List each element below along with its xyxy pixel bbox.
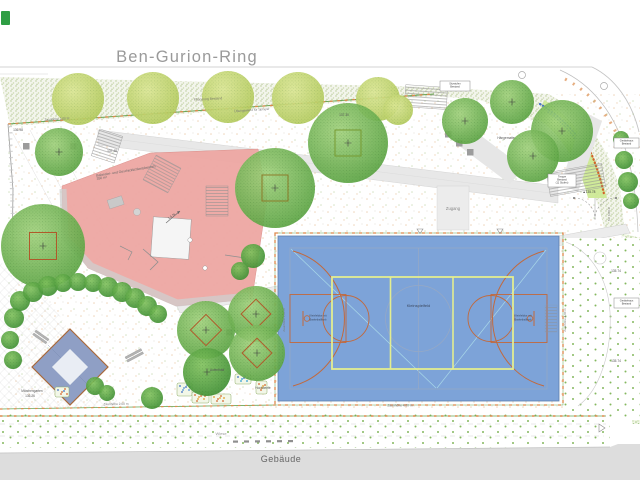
bed-flower-dot (246, 380, 248, 382)
annotation-box-text: Bestand (450, 85, 460, 89)
plan-label: Hochbeete (255, 386, 271, 390)
play-equipment (134, 209, 141, 216)
bed-flower-dot (57, 389, 59, 391)
plan-label: Tor 4,00 m (607, 206, 611, 221)
bed-flower-dot (194, 394, 196, 396)
tree-texture (618, 172, 638, 192)
legend-chip (1, 11, 10, 25)
bed-flower-dot (198, 396, 200, 398)
bed-flower-dot (196, 400, 198, 402)
gate-post (615, 197, 617, 199)
plaza-fixture (467, 149, 474, 156)
court-steps (545, 305, 557, 332)
annotation-box-text: Bestand (622, 302, 632, 306)
bed-flower-dot (258, 383, 260, 385)
bed-flower-dot (219, 397, 221, 399)
tree-texture (272, 72, 324, 124)
plan-label: 135.74 (611, 269, 621, 273)
plan-label: Hängematte (497, 136, 515, 140)
bed-flower-dot (197, 398, 199, 400)
meadow-dots (0, 412, 610, 448)
tree-texture (141, 387, 163, 409)
plan-label: 137.30 (339, 113, 349, 117)
bed-flower-dot (237, 376, 239, 378)
plan-label: 136.98 (13, 128, 23, 132)
tree-texture (4, 308, 24, 328)
fence-label-right: Zaunhöhe 4,00 m (563, 308, 567, 332)
tree-texture (4, 351, 22, 369)
plan-label: Zugang (446, 206, 461, 211)
bed-flower-dot (63, 390, 65, 392)
tree-texture (127, 72, 179, 124)
plan-label: ▲135.78 (583, 190, 596, 194)
post (188, 238, 192, 242)
bed-flower-dot (183, 387, 185, 389)
plan-label: 135.74 (611, 359, 621, 363)
bed-flower-dot (188, 389, 190, 391)
bed-flower-dot (64, 388, 66, 390)
right-meadow (563, 238, 640, 420)
post (203, 266, 207, 270)
tree-texture (231, 262, 249, 280)
bed-flower-dot (213, 396, 215, 398)
tree-texture (149, 305, 167, 323)
bottom-meadow (0, 412, 610, 448)
goal-label-right: Basketballkorb (514, 318, 532, 322)
tree-texture (615, 151, 633, 169)
equipment-pad (151, 217, 192, 260)
bed-flower-dot (61, 391, 63, 393)
bed-flower-dot (223, 397, 225, 399)
bed-flower-dot (66, 393, 68, 395)
street-lamp-icon (519, 72, 526, 79)
bed-flower-dot (241, 378, 243, 380)
tree-texture (99, 385, 115, 401)
plan-label: Zaunhöhe 2,00 m (103, 402, 128, 406)
goal-label-right: Kleinfeldtor mit (514, 314, 531, 318)
plaza-fixture (23, 143, 30, 150)
bed-flower-dot (240, 380, 242, 382)
tree-texture (623, 193, 639, 209)
meadow-dots (563, 238, 640, 420)
plan-label: Aufenthalt (210, 368, 224, 372)
street-lamp-icon (601, 83, 608, 90)
plan-label: 137.48 (107, 149, 117, 153)
plan-label: Wiese (215, 431, 227, 436)
bed-flower-dot (181, 391, 183, 393)
goal-label-left: Kleinfeldtor mit (309, 314, 326, 318)
tree-texture (383, 95, 413, 125)
bed-flower-dot (220, 395, 222, 397)
court-center-label: Kleinspielfeld (407, 303, 431, 308)
fence-label-bottom: Zaunhöhe 4,00 m (388, 404, 413, 408)
bed-flower-dot (222, 400, 224, 402)
street-name: Ben-Gurion-Ring (116, 48, 258, 66)
plan-label: 136.26 (25, 394, 35, 398)
bed-flower-dot (179, 385, 181, 387)
bed-flower-dot (60, 393, 62, 395)
building-label: Gebäude (261, 454, 302, 464)
site-plan-page: Ben-Gurion-Ring (0, 0, 640, 480)
court-group: Kleinspielfeld Kleinfeldtor mit Basketba… (275, 229, 567, 408)
bed-flower-dot (185, 386, 187, 388)
plan-label: Märchengarten (21, 389, 43, 393)
play-stairs (206, 186, 228, 216)
tree-texture (1, 331, 19, 349)
bed-flower-dot (216, 400, 218, 402)
bed-flower-dot (182, 389, 184, 391)
annotation-box-text: (11 Stufen) (556, 181, 569, 185)
gate-post (573, 197, 575, 199)
bed-flower-dot (217, 398, 219, 400)
site-plan-drawing: Ben-Gurion-Ring (0, 0, 640, 480)
goal-label-left: Basketballkorb (309, 318, 327, 322)
bed-flower-dot (203, 398, 205, 400)
annotation-box-text: Bestand (622, 142, 632, 146)
